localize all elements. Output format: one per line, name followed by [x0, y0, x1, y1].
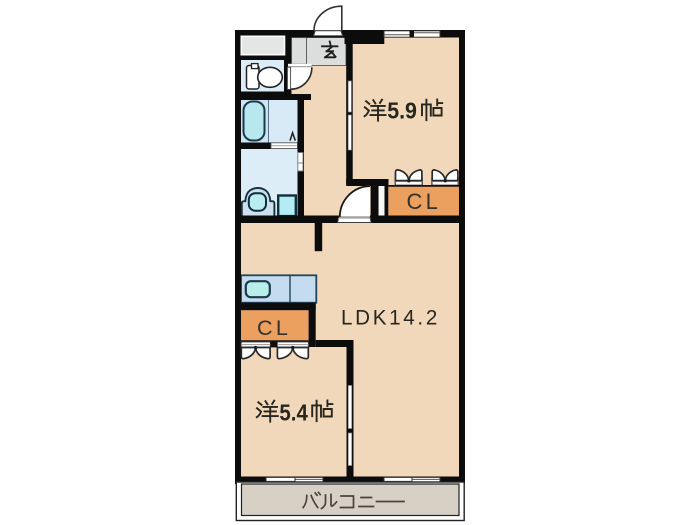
svg-text:5.9: 5.9	[387, 97, 417, 123]
svg-text:CL: CL	[257, 316, 291, 340]
svg-text:CL: CL	[407, 189, 442, 214]
svg-text:LDK14.2: LDK14.2	[341, 306, 440, 330]
svg-text:5.4: 5.4	[279, 399, 308, 425]
